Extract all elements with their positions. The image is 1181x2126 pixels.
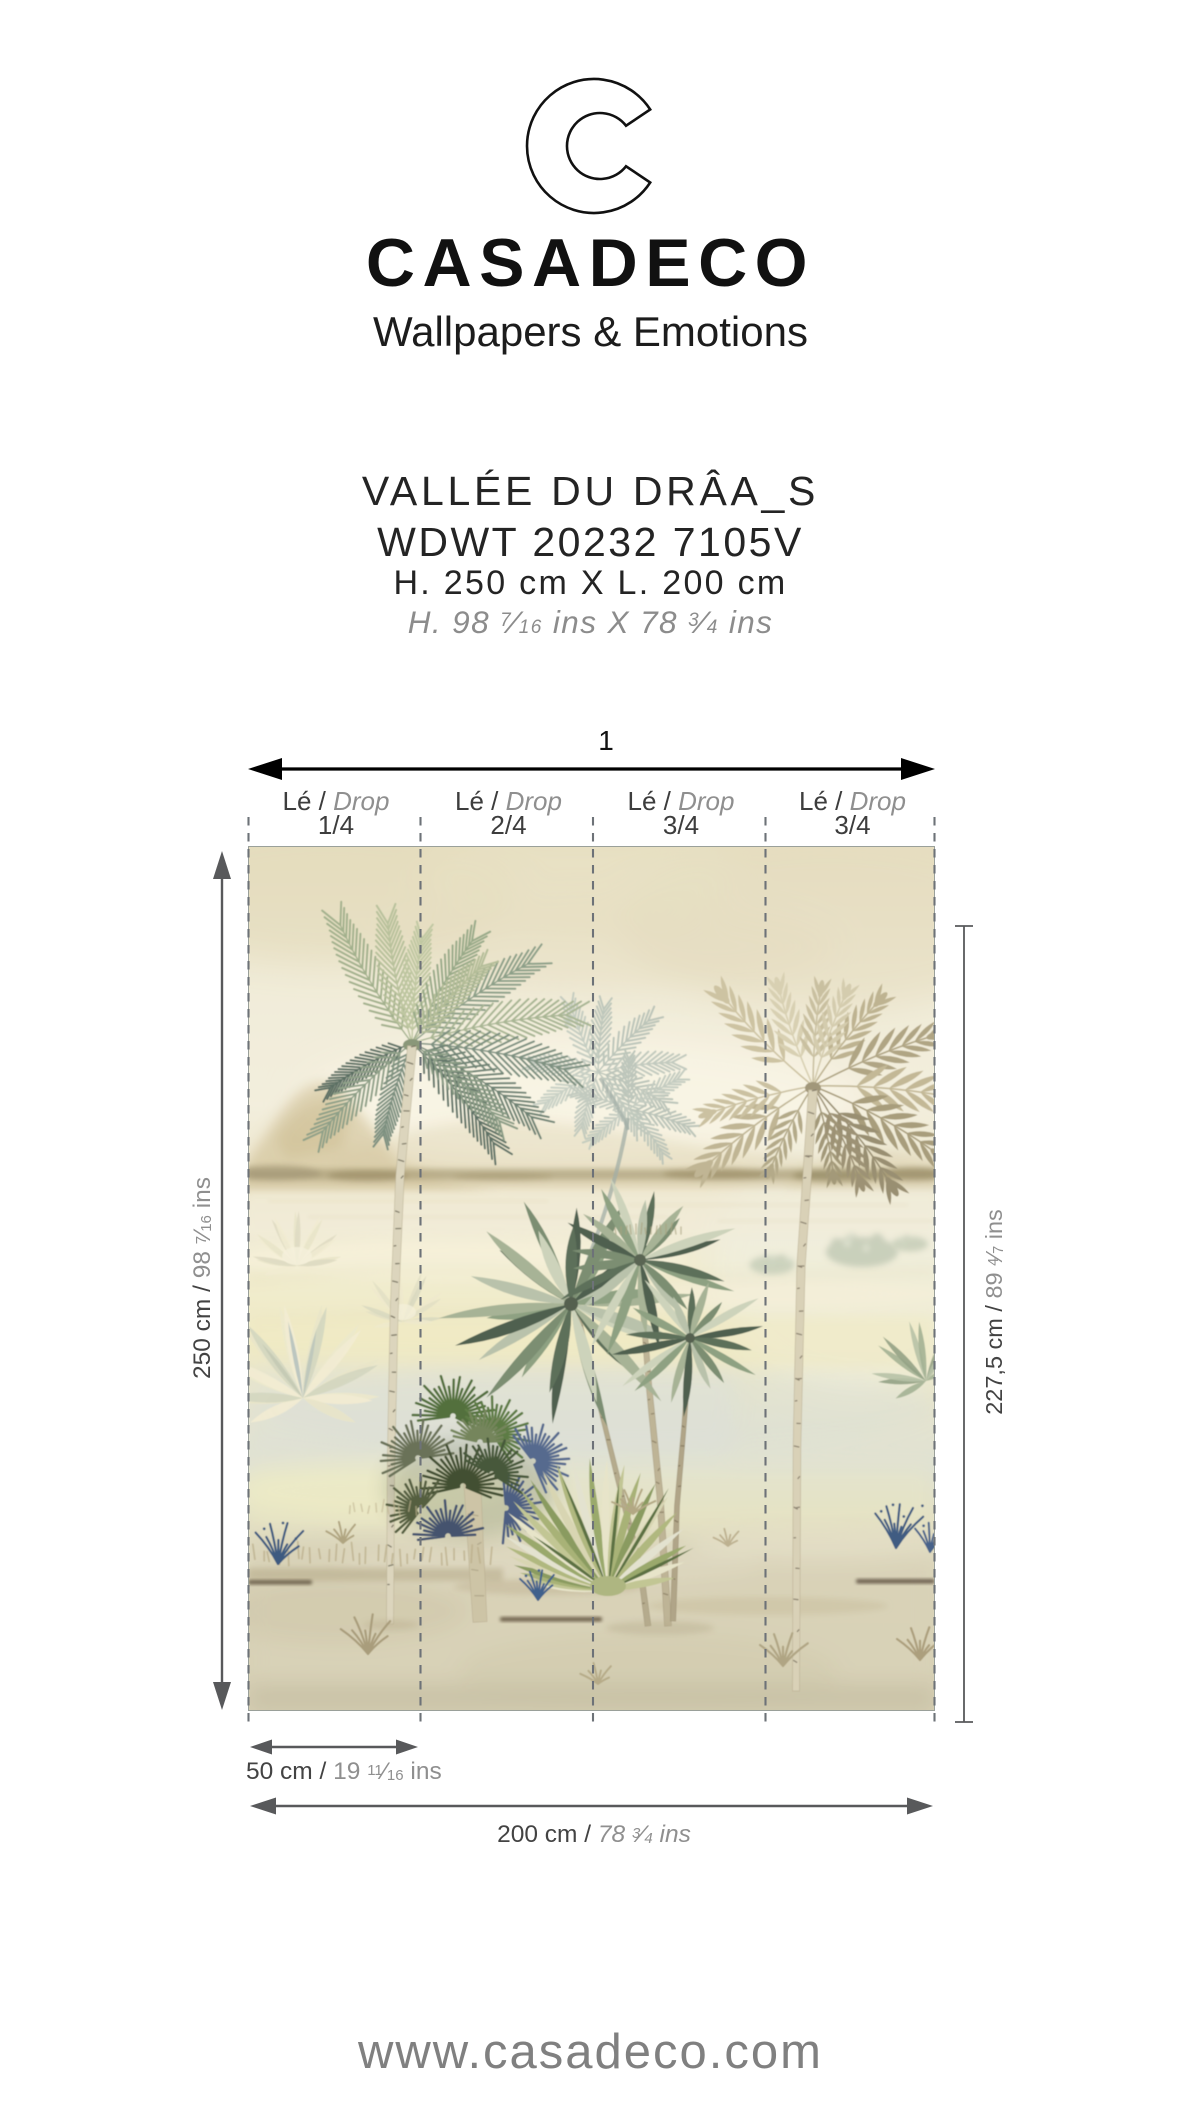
svg-text:250 cm / 98 7⁄16 ins: 250 cm / 98 7⁄16 ins: [189, 1177, 216, 1379]
svg-text:1: 1: [598, 725, 614, 756]
svg-text:200 cm / 78 3⁄4 ins: 200 cm / 78 3⁄4 ins: [497, 1821, 691, 1848]
svg-text:3/4: 3/4: [834, 810, 870, 840]
svg-text:50 cm / 19 11⁄16 ins: 50 cm / 19 11⁄16 ins: [246, 1758, 442, 1785]
svg-text:227,5 cm / 89 4⁄7 ins: 227,5 cm / 89 4⁄7 ins: [981, 1209, 1007, 1415]
svg-text:1/4: 1/4: [318, 810, 354, 840]
svg-text:3/4: 3/4: [663, 810, 699, 840]
svg-text:2/4: 2/4: [490, 810, 526, 840]
